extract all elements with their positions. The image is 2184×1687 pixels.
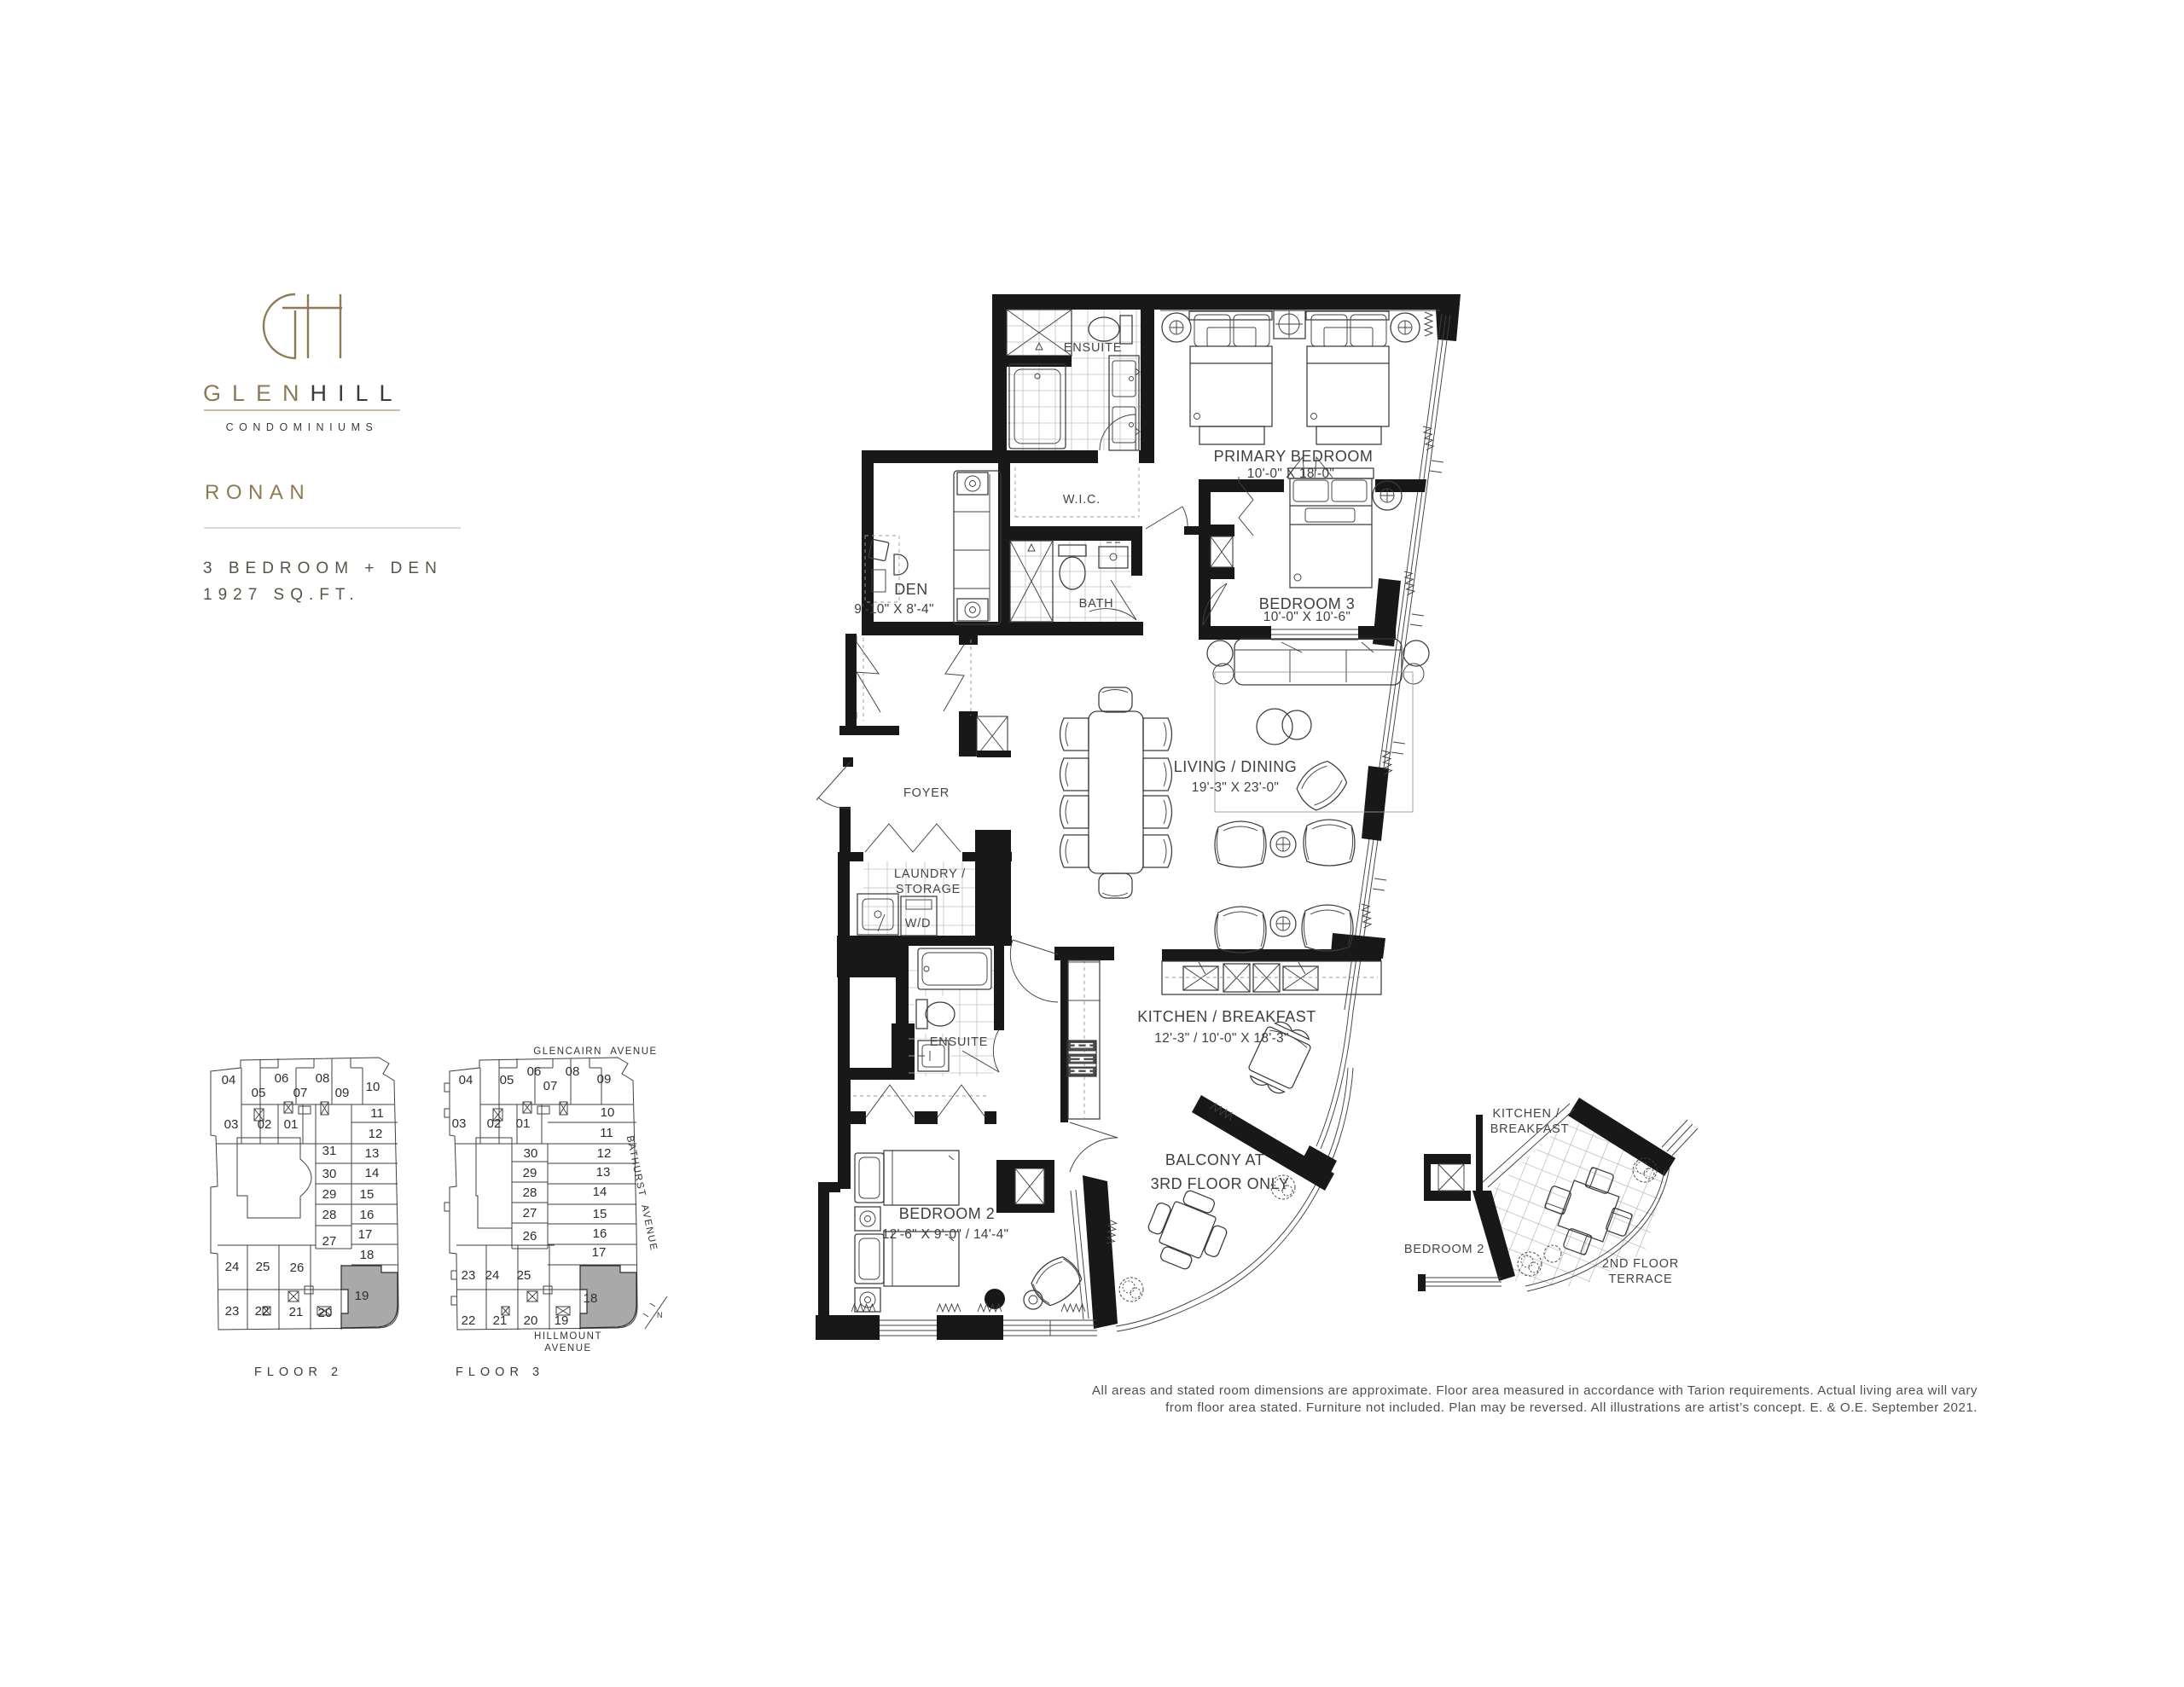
- svg-text:GLENHILL: GLENHILL: [203, 380, 404, 406]
- svg-text:CONDOMINIUMS: CONDOMINIUMS: [226, 421, 379, 433]
- svg-text:LIVING / DINING: LIVING / DINING: [1174, 758, 1298, 775]
- svg-text:26: 26: [523, 1229, 537, 1244]
- svg-text:08: 08: [566, 1064, 580, 1079]
- svg-text:STORAGE: STORAGE: [896, 883, 961, 896]
- svg-text:30: 30: [322, 1167, 337, 1181]
- svg-text:03: 03: [224, 1117, 239, 1132]
- svg-text:16: 16: [360, 1208, 375, 1222]
- svg-text:KITCHEN / BREAKFAST: KITCHEN / BREAKFAST: [1137, 1008, 1316, 1025]
- svg-text:All areas and stated room dime: All areas and stated room dimensions are…: [1092, 1383, 1978, 1398]
- svg-text:GLENCAIRN AVENUE: GLENCAIRN AVENUE: [533, 1046, 657, 1057]
- svg-text:02: 02: [487, 1116, 502, 1131]
- svg-text:07: 07: [543, 1079, 558, 1093]
- svg-text:10'-0" X 10'-6": 10'-0" X 10'-6": [1263, 610, 1350, 624]
- svg-text:17: 17: [358, 1227, 373, 1242]
- svg-text:ENSUITE: ENSUITE: [930, 1035, 988, 1049]
- svg-text:28: 28: [523, 1186, 537, 1200]
- svg-text:15: 15: [360, 1187, 375, 1202]
- svg-text:05: 05: [252, 1086, 266, 1100]
- svg-text:25: 25: [517, 1268, 531, 1283]
- svg-text:PRIMARY BEDROOM: PRIMARY BEDROOM: [1214, 448, 1374, 465]
- svg-text:23: 23: [462, 1268, 476, 1283]
- svg-text:23: 23: [225, 1304, 240, 1319]
- svg-text:04: 04: [222, 1073, 236, 1087]
- svg-text:W/D: W/D: [905, 917, 932, 930]
- svg-text:12'-6" X 9'-0" / 14'-4": 12'-6" X 9'-0" / 14'-4": [882, 1227, 1009, 1242]
- svg-text:21: 21: [493, 1313, 508, 1328]
- svg-text:AVENUE: AVENUE: [544, 1343, 591, 1354]
- svg-text:13: 13: [365, 1146, 380, 1161]
- svg-text:BALCONY AT: BALCONY AT: [1165, 1151, 1264, 1168]
- svg-text:FOYER: FOYER: [903, 786, 950, 800]
- svg-text:09: 09: [597, 1072, 612, 1087]
- svg-text:15: 15: [593, 1207, 607, 1221]
- svg-text:01: 01: [516, 1116, 531, 1131]
- svg-text:27: 27: [523, 1206, 537, 1220]
- svg-text:31: 31: [322, 1144, 337, 1158]
- svg-text:05: 05: [500, 1073, 514, 1087]
- svg-text:18: 18: [584, 1291, 598, 1306]
- svg-text:ENSUITE: ENSUITE: [1064, 341, 1122, 355]
- svg-text:FLOOR 3: FLOOR 3: [456, 1365, 544, 1379]
- svg-text:26: 26: [290, 1261, 305, 1275]
- svg-text:30: 30: [524, 1146, 538, 1161]
- svg-text:10: 10: [366, 1080, 380, 1094]
- svg-text:2ND FLOOR: 2ND FLOOR: [1602, 1257, 1679, 1271]
- svg-text:09: 09: [335, 1086, 350, 1100]
- svg-text:06: 06: [275, 1071, 289, 1086]
- svg-text:19: 19: [355, 1289, 369, 1303]
- svg-text:from floor area stated. Furnit: from floor area stated. Furniture not in…: [1165, 1400, 1978, 1415]
- svg-text:02: 02: [258, 1117, 272, 1132]
- svg-text:1927 SQ.FT.: 1927 SQ.FT.: [203, 586, 360, 604]
- svg-text:18: 18: [360, 1248, 375, 1262]
- svg-text:3RD FLOOR ONLY: 3RD FLOOR ONLY: [1151, 1175, 1290, 1192]
- svg-text:24: 24: [485, 1268, 500, 1283]
- svg-text:10: 10: [601, 1105, 615, 1120]
- svg-text:DEN: DEN: [894, 581, 928, 598]
- svg-text:BATH: BATH: [1079, 597, 1114, 611]
- svg-text:11: 11: [370, 1106, 384, 1121]
- svg-text:17: 17: [592, 1245, 607, 1260]
- svg-text:04: 04: [459, 1073, 473, 1087]
- svg-text:29: 29: [322, 1187, 337, 1202]
- svg-text:TERRACE: TERRACE: [1609, 1272, 1673, 1286]
- svg-text:LAUNDRY /: LAUNDRY /: [894, 867, 966, 881]
- svg-text:07: 07: [293, 1086, 308, 1100]
- svg-text:16: 16: [593, 1226, 607, 1241]
- svg-text:11: 11: [600, 1126, 613, 1140]
- svg-text:20: 20: [524, 1313, 538, 1328]
- svg-text:N: N: [657, 1311, 663, 1319]
- svg-text:BEDROOM 2: BEDROOM 2: [1404, 1243, 1484, 1256]
- svg-text:RONAN: RONAN: [205, 481, 311, 504]
- svg-text:22: 22: [462, 1313, 476, 1328]
- svg-text:19'-3" X 23'-0": 19'-3" X 23'-0": [1192, 780, 1279, 795]
- svg-text:BREAKFAST: BREAKFAST: [1490, 1122, 1570, 1136]
- svg-text:14: 14: [593, 1185, 607, 1199]
- svg-text:01: 01: [284, 1117, 299, 1132]
- svg-text:19: 19: [555, 1313, 569, 1328]
- svg-text:22: 22: [255, 1304, 270, 1319]
- svg-text:27: 27: [322, 1234, 337, 1249]
- svg-text:W.I.C.: W.I.C.: [1063, 493, 1101, 507]
- svg-text:9'-10" X 8'-4": 9'-10" X 8'-4": [854, 602, 934, 617]
- svg-text:14: 14: [365, 1166, 380, 1180]
- svg-text:03: 03: [452, 1116, 467, 1131]
- svg-text:12: 12: [597, 1146, 612, 1161]
- svg-text:KITCHEN /: KITCHEN /: [1493, 1107, 1560, 1121]
- svg-text:25: 25: [256, 1260, 270, 1274]
- svg-text:12: 12: [369, 1127, 383, 1141]
- svg-text:20: 20: [318, 1306, 333, 1320]
- svg-text:24: 24: [225, 1260, 240, 1274]
- svg-text:29: 29: [523, 1166, 537, 1180]
- svg-text:BATHURST AVENUE: BATHURST AVENUE: [624, 1135, 659, 1252]
- svg-text:21: 21: [289, 1305, 304, 1319]
- svg-text:06: 06: [527, 1064, 542, 1079]
- svg-text:HILLMOUNT: HILLMOUNT: [534, 1331, 602, 1342]
- svg-text:3 BEDROOM + DEN: 3 BEDROOM + DEN: [203, 559, 443, 577]
- svg-text:13: 13: [596, 1165, 611, 1180]
- svg-text:28: 28: [322, 1208, 337, 1222]
- svg-text:08: 08: [316, 1071, 330, 1086]
- svg-text:BEDROOM 2: BEDROOM 2: [899, 1205, 996, 1222]
- svg-text:12'-3" / 10'-0" X 18'-3": 12'-3" / 10'-0" X 18'-3": [1154, 1031, 1289, 1046]
- svg-text:FLOOR 2: FLOOR 2: [254, 1365, 343, 1379]
